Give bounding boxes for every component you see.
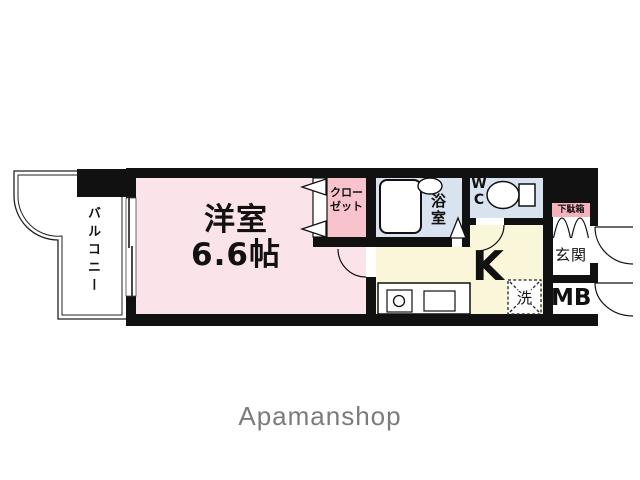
entrance-door-arc: [595, 227, 633, 264]
bathroom-sink: [418, 178, 442, 194]
kitchen-label: K: [466, 242, 510, 290]
laundry-label: 洗: [508, 287, 541, 308]
floorplan-page: 洋室 6.6帖 バルコニー クロー ゼット 浴室 WC K 洗 下駄箱 玄関 M…: [0, 0, 640, 480]
mb-door-arc: [595, 283, 633, 316]
main-room-label: 洋室 6.6帖: [138, 203, 334, 273]
main-room-name: 洋室: [138, 203, 334, 238]
kitchen-counter: [378, 283, 470, 314]
balcony-window: [126, 198, 136, 296]
closet-label: クロー ゼット: [326, 186, 367, 215]
mb-label: MB: [551, 285, 591, 311]
brand-logo: Apamanshop: [120, 401, 520, 432]
balcony-label: バルコニー: [83, 206, 102, 318]
wc-label: WC: [471, 176, 487, 214]
bathtub: [380, 180, 421, 233]
stove-burner: [394, 296, 405, 307]
bathroom-label: 浴室: [428, 193, 449, 243]
shoe-cabinet-label: 下駄箱: [552, 203, 590, 217]
kitchen-sink: [424, 291, 455, 311]
main-room-size: 6.6帖: [138, 238, 334, 273]
toilet: [487, 182, 535, 209]
entrance-label: 玄関: [551, 244, 591, 265]
